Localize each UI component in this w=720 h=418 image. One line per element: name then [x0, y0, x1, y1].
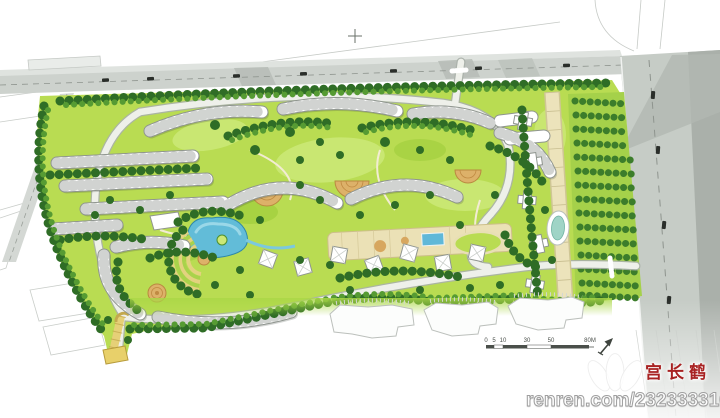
master-plan-image: 0 5 10 30 50 80M 宫长鹤 renren.com/23233331… [0, 0, 720, 418]
scale-label: 10 [500, 338, 507, 344]
scale-label: 80M [584, 338, 596, 344]
site-plan-drawing: 0 5 10 30 50 80M [0, 0, 720, 418]
pond-island [217, 235, 227, 245]
axis-pool [422, 233, 445, 246]
scale-label: 30 [524, 338, 531, 344]
scale-label: 50 [548, 338, 555, 344]
